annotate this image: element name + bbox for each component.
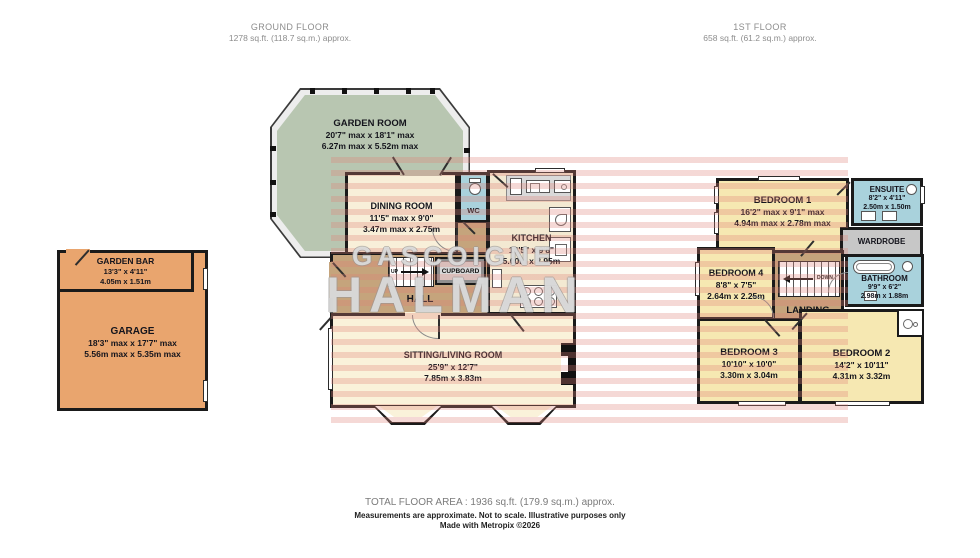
tap-icon — [554, 180, 571, 193]
bedroom1-window — [714, 212, 719, 234]
window-mullion — [430, 88, 435, 94]
first-floor-area: 658 sq.ft. (61.2 sq.m.) approx. — [640, 33, 880, 43]
vanity-icon — [861, 211, 876, 221]
bedroom2-window — [835, 401, 890, 406]
down-arrow-icon — [789, 278, 813, 280]
fireplace-icon — [561, 343, 576, 385]
dining-door — [456, 228, 458, 252]
bedroom1-window — [714, 186, 719, 204]
cupboard-label: CUPBOARD — [440, 262, 481, 280]
glass-cabinet-icon — [510, 178, 522, 195]
window-mullion — [270, 180, 276, 185]
toilet-icon — [469, 183, 481, 195]
sink-icon — [902, 261, 913, 272]
window-mullion — [342, 88, 347, 94]
bedroom4-window — [695, 262, 700, 296]
window-mullion — [310, 88, 315, 94]
appliance-icon — [549, 237, 571, 262]
window-mullion — [406, 88, 411, 94]
window-mullion — [270, 146, 276, 151]
hob-icon — [520, 285, 557, 308]
entrance-gap — [329, 262, 334, 298]
ground-floor-title: GROUND FLOOR — [170, 22, 410, 32]
bedroom1-window — [758, 176, 800, 181]
sitting-window — [328, 328, 333, 390]
up-arrow-icon — [401, 271, 423, 273]
room-bedroom1: BEDROOM 1 16'2" max x 9'1" max 4.94m max… — [716, 178, 849, 255]
footer: TOTAL FLOOR AREA : 1936 sq.ft. (179.9 sq… — [240, 497, 740, 530]
hall-label: HALL — [353, 293, 487, 306]
window-mullion — [374, 88, 379, 94]
ground-floor-area: 1278 sq.ft. (118.7 sq.m.) approx. — [170, 33, 410, 43]
disclaimer: Measurements are approximate. Not to sca… — [240, 511, 740, 520]
ensuite-window — [920, 186, 925, 204]
room-wc: WC — [458, 172, 489, 225]
total-floor-area: TOTAL FLOOR AREA : 1936 sq.ft. (179.9 sq… — [240, 497, 740, 508]
radiator-icon — [492, 269, 502, 288]
garden-door-gap — [400, 171, 442, 176]
ground-floor-header: GROUND FLOOR 1278 sq.ft. (118.7 sq.m.) a… — [170, 22, 410, 43]
first-floor-title: 1ST FLOOR — [640, 22, 880, 32]
room-kitchen: KITCHEN 16'5" x 9'8" 5.00m x 2.95m — [487, 170, 576, 315]
bath-icon — [853, 260, 895, 274]
sink-icon — [906, 184, 917, 195]
sink-icon — [526, 180, 550, 193]
kitchen-window — [535, 168, 565, 173]
room-hall: UP CUPBOARD HALL — [330, 252, 490, 316]
window-mullion — [270, 212, 276, 217]
room-sitting-living: SITTING/LIVING ROOM 25'9" x 12'7" 7.85m … — [330, 313, 576, 408]
bedroom3-window — [738, 401, 786, 406]
room-cupboard: CUPBOARD — [435, 257, 486, 285]
toilet-icon — [882, 211, 897, 221]
room-wardrobe: WARDROBE — [840, 227, 923, 257]
garage-label: GARAGE 18'3" max x 17'7" max 5.56m max x… — [20, 325, 245, 360]
room-bathroom: BATHROOM 9'9" x 6'2" 2.98m x 1.88m — [845, 254, 924, 307]
room-garden-bar: GARDEN BAR 13'3" x 4'11" 4.05m x 1.51m — [57, 250, 194, 292]
first-floor-header: 1ST FLOOR 658 sq.ft. (61.2 sq.m.) approx… — [640, 22, 880, 43]
credit: Made with Metropix ©2026 — [240, 521, 740, 530]
appliance-icon — [549, 207, 571, 232]
window-mullion — [464, 148, 470, 153]
sitting-door — [438, 315, 440, 339]
room-bedroom3: BEDROOM 3 10'10" x 10'0" 3.30m x 3.04m — [697, 318, 801, 404]
shower-icon — [897, 309, 924, 337]
floorplan-page: GROUND FLOOR 1278 sq.ft. (118.7 sq.m.) a… — [0, 0, 980, 558]
garage-window — [203, 380, 208, 402]
room-ensuite: ENSUITE 8'2" x 4'11" 2.50m x 1.50m — [851, 178, 923, 226]
garage-window — [203, 268, 208, 290]
toilet-icon — [864, 291, 877, 301]
stairs-up-label: UP — [391, 269, 398, 275]
